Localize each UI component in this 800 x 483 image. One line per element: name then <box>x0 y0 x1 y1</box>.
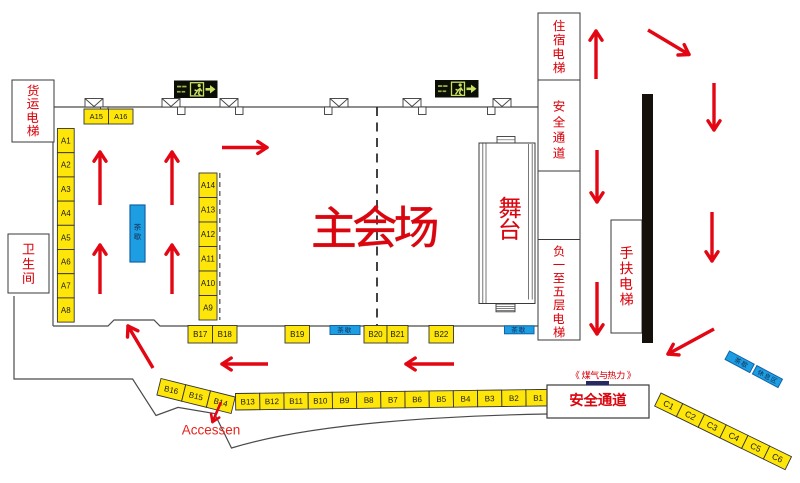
svg-text:A6: A6 <box>61 258 71 267</box>
svg-text:A8: A8 <box>61 306 71 315</box>
svg-text:B21: B21 <box>390 330 405 339</box>
svg-text:B18: B18 <box>218 330 233 339</box>
svg-text:B8: B8 <box>364 396 374 405</box>
svg-text:B10: B10 <box>313 396 328 405</box>
svg-text:A15: A15 <box>90 112 103 121</box>
svg-text:B7: B7 <box>388 395 398 404</box>
svg-text:A1: A1 <box>61 137 71 146</box>
svg-text:B5: B5 <box>436 395 446 404</box>
svg-text:B2: B2 <box>509 394 519 403</box>
svg-text:B11: B11 <box>289 397 303 406</box>
svg-text:A3: A3 <box>61 185 71 194</box>
svg-text:Accessen: Accessen <box>182 423 241 438</box>
svg-text:B17: B17 <box>193 330 208 339</box>
svg-text:A10: A10 <box>201 279 216 288</box>
svg-text:B3: B3 <box>485 394 495 403</box>
svg-text:A13: A13 <box>201 206 216 215</box>
svg-text:B19: B19 <box>290 330 305 339</box>
svg-text:B1: B1 <box>533 394 543 403</box>
svg-text:B6: B6 <box>412 395 422 404</box>
svg-text:A14: A14 <box>201 181 216 190</box>
svg-text:A12: A12 <box>201 230 216 239</box>
svg-text:A16: A16 <box>114 112 127 121</box>
svg-text:B9: B9 <box>340 396 350 405</box>
svg-text:B20: B20 <box>368 330 383 339</box>
svg-text:A11: A11 <box>201 255 215 264</box>
svg-text:A5: A5 <box>61 233 71 242</box>
svg-text:B13: B13 <box>241 397 256 406</box>
svg-text:B22: B22 <box>434 330 449 339</box>
svg-text:A4: A4 <box>61 209 71 218</box>
svg-text:B4: B4 <box>461 395 471 404</box>
svg-text:B12: B12 <box>265 397 280 406</box>
svg-text:A2: A2 <box>61 161 71 170</box>
svg-text:A9: A9 <box>203 304 213 313</box>
svg-text:A7: A7 <box>61 282 71 291</box>
